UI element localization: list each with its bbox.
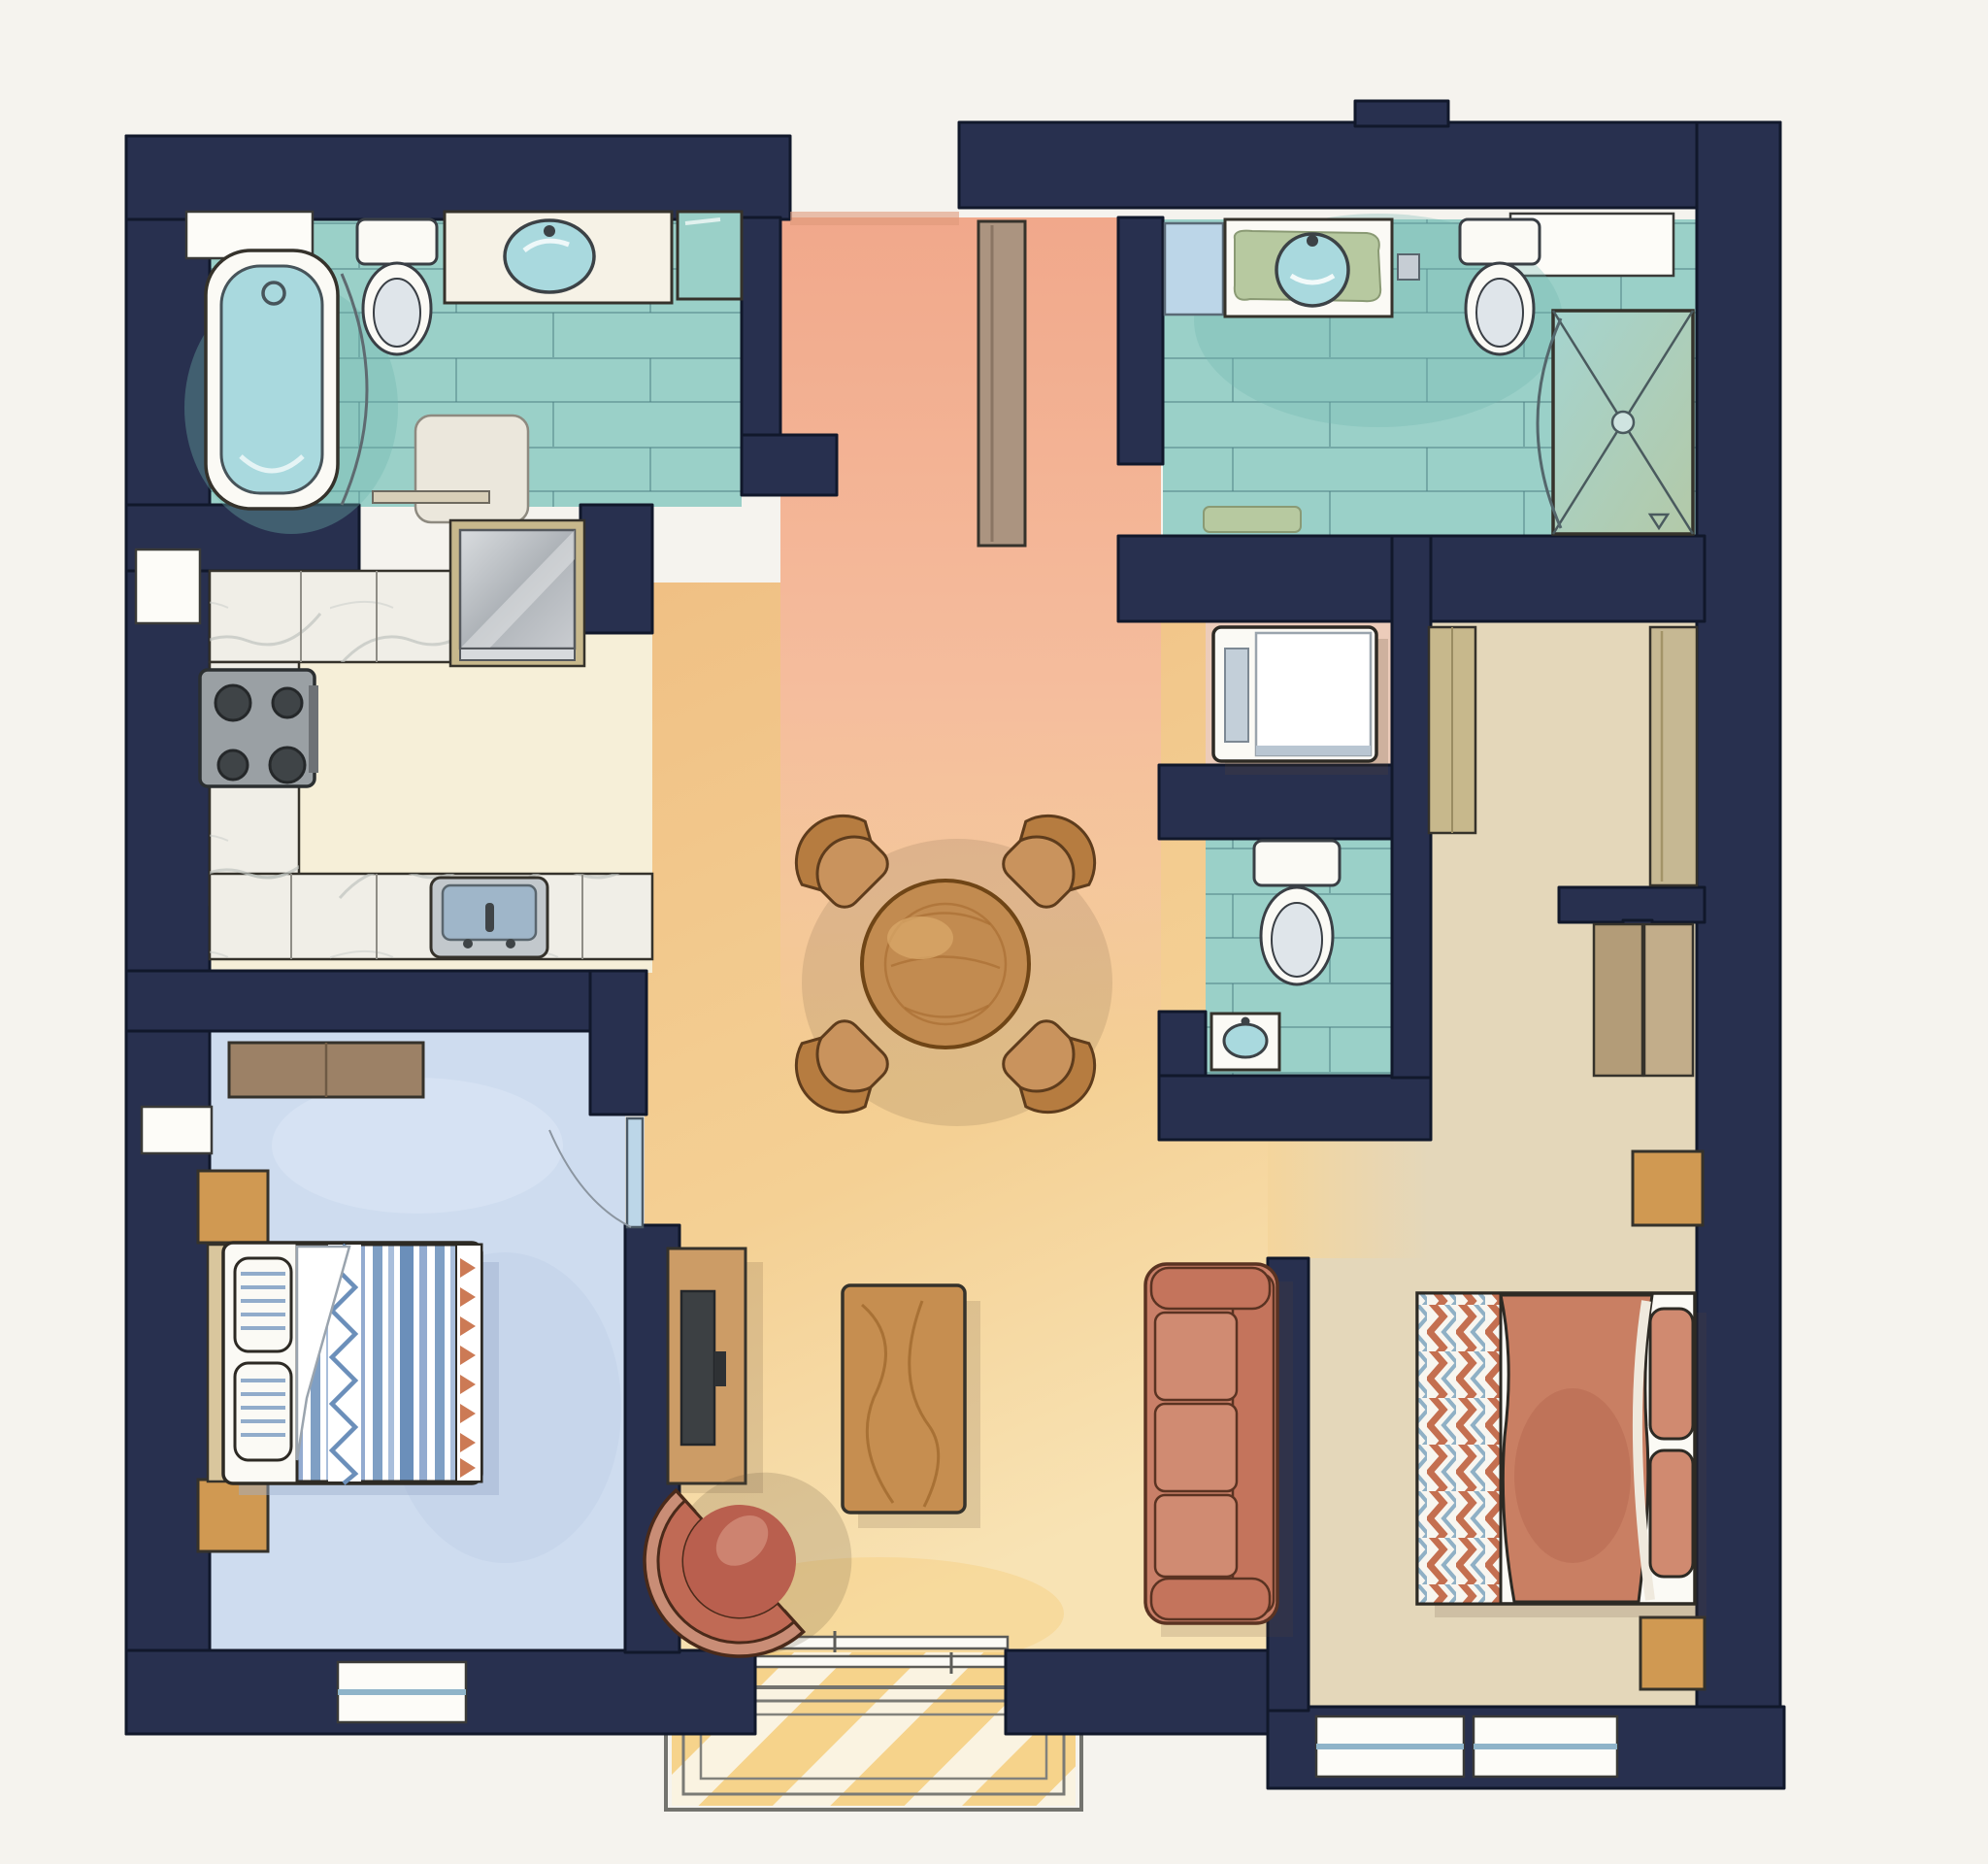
burner-icon bbox=[218, 750, 248, 780]
nightstand-left-1 bbox=[198, 1171, 268, 1243]
washer-lid bbox=[1256, 633, 1371, 755]
bedroom-left-door-leaf bbox=[627, 1118, 643, 1227]
wall-wc-bedroom-divider bbox=[1392, 536, 1431, 1078]
dining-table-sheen bbox=[887, 916, 953, 959]
wall-wc-bottom bbox=[1159, 1076, 1431, 1140]
dining-table bbox=[862, 881, 1029, 1048]
bed-left bbox=[208, 1243, 499, 1495]
tv-icon bbox=[681, 1291, 714, 1445]
bedroom-right-passage-floor bbox=[1268, 1140, 1429, 1258]
sofa bbox=[1145, 1264, 1293, 1637]
wall-top-left bbox=[126, 136, 790, 219]
wall-bedroom-left-upper bbox=[590, 971, 646, 1115]
bath-mat-second bbox=[1204, 507, 1301, 532]
tv-console bbox=[668, 1248, 763, 1493]
bath-mat-main bbox=[415, 416, 528, 522]
toilet-second bbox=[1460, 219, 1540, 354]
bed-right-chevron-runner bbox=[1417, 1293, 1501, 1604]
window-kitchen-left bbox=[136, 549, 200, 623]
wall-bath-main-foot bbox=[742, 435, 837, 495]
sink-second-faucet-icon bbox=[1307, 235, 1318, 247]
wall-top-right bbox=[959, 122, 1780, 208]
burner-icon bbox=[273, 688, 302, 717]
wall-bath-second-left bbox=[1118, 217, 1163, 464]
kitchen-sink bbox=[431, 878, 547, 957]
wall-right-exterior bbox=[1697, 122, 1780, 1788]
washer-door-panel bbox=[1225, 649, 1248, 742]
toilet-main bbox=[357, 219, 437, 354]
sofa-backrest bbox=[1233, 1274, 1274, 1614]
bed-right bbox=[1417, 1293, 1706, 1617]
sofa-armrest-bottom bbox=[1151, 1579, 1270, 1619]
nightstand-right-1 bbox=[1633, 1151, 1703, 1225]
nightstand-right-2 bbox=[1640, 1617, 1705, 1689]
burner-icon bbox=[215, 685, 250, 720]
sofa-cushions bbox=[1155, 1313, 1237, 1577]
window-bedroom-left-bottom bbox=[338, 1662, 466, 1722]
wall-closet-wc-divider bbox=[1159, 765, 1429, 839]
floor-plan-stage bbox=[0, 0, 1988, 1864]
soap-dish bbox=[1398, 254, 1419, 280]
window-bedroom-right-1 bbox=[1316, 1716, 1464, 1777]
washer-base-strip bbox=[1256, 746, 1371, 755]
shower-drain-icon bbox=[1612, 412, 1634, 433]
bathtub-water bbox=[221, 266, 322, 493]
wall-bottom-living bbox=[1006, 1650, 1276, 1734]
entry-threshold bbox=[790, 212, 959, 225]
refrigerator-handle bbox=[460, 649, 575, 660]
towel-shelf bbox=[1165, 223, 1223, 315]
laundry-closet bbox=[1213, 627, 1388, 775]
wall-closet-nook bbox=[1559, 887, 1705, 922]
bath-main-door-mat bbox=[373, 491, 489, 503]
sofa-armrest-top bbox=[1151, 1268, 1270, 1309]
shower-stall bbox=[1538, 311, 1693, 534]
toilet-wc bbox=[1254, 841, 1340, 984]
hand-sink bbox=[1211, 1014, 1279, 1070]
sink-main-faucet-icon bbox=[544, 225, 555, 237]
closet-sliding-doors bbox=[1594, 924, 1693, 1076]
entry-door-leaf bbox=[978, 221, 1025, 546]
burner-icon bbox=[270, 748, 305, 782]
tv-stand bbox=[714, 1351, 726, 1386]
wall-top-stub bbox=[1355, 101, 1448, 126]
bedroom-right-door-leaf bbox=[1650, 627, 1697, 885]
hand-sink-faucet-icon bbox=[1242, 1017, 1250, 1026]
window-bedroom-right-2 bbox=[1474, 1716, 1617, 1777]
bed-right-duvet-shade bbox=[1514, 1388, 1631, 1563]
window-bedroom-left-side bbox=[142, 1107, 212, 1153]
wall-kitchen-bedroom bbox=[126, 971, 592, 1031]
floor-plan-canvas bbox=[0, 0, 1988, 1864]
coffee-table bbox=[843, 1285, 980, 1528]
kitchen-faucet-icon bbox=[485, 903, 494, 932]
stove bbox=[200, 670, 318, 786]
wall-kitchen-stub bbox=[580, 505, 652, 633]
wall-wc-left bbox=[1159, 1012, 1206, 1078]
stove-control-strip bbox=[309, 685, 318, 773]
refrigerator bbox=[450, 520, 584, 666]
